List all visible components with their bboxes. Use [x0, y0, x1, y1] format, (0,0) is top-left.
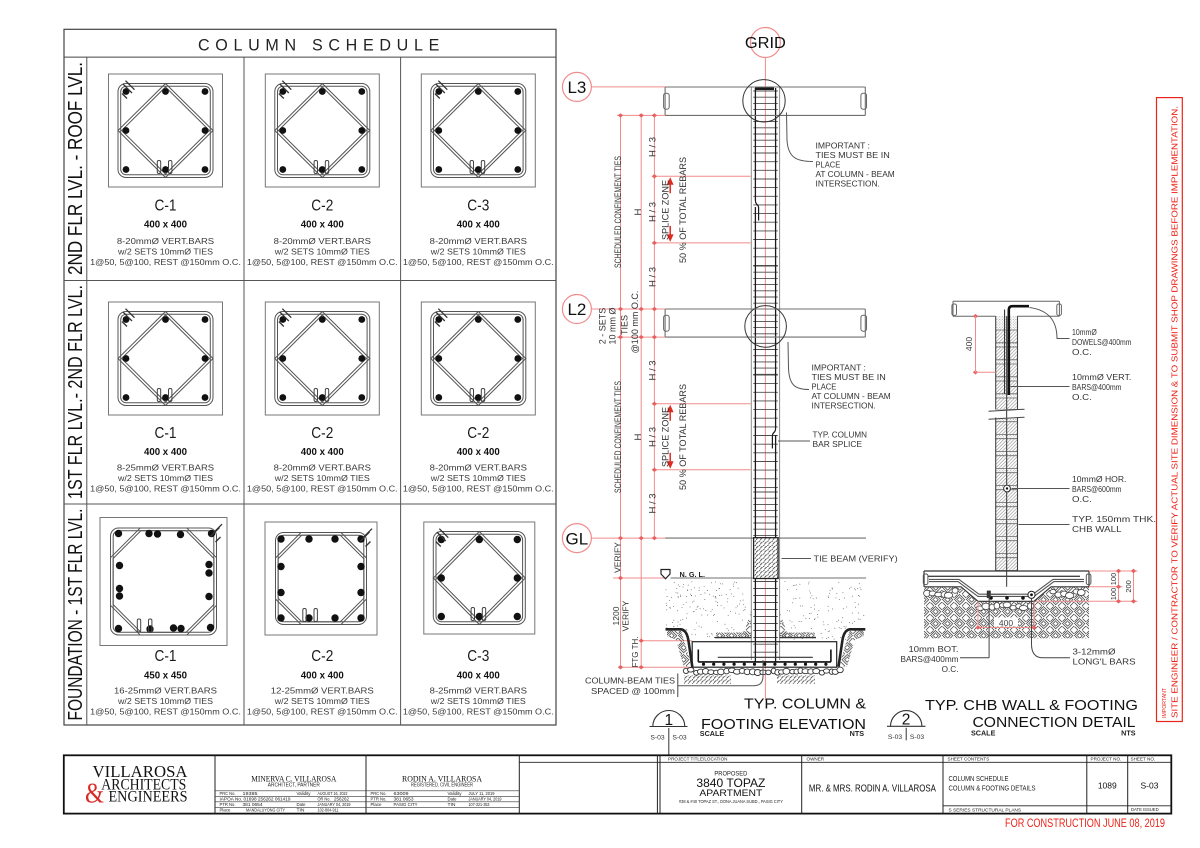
svg-text:400 x 400: 400 x 400 — [301, 671, 344, 682]
svg-text:S-03: S-03 — [888, 734, 903, 741]
svg-text:C-2: C-2 — [467, 425, 489, 442]
svg-text:Validity: Validity — [297, 791, 312, 797]
svg-text:8-20mmØ VERT.BARS: 8-20mmØ VERT.BARS — [430, 236, 527, 246]
svg-text:400 x 400: 400 x 400 — [144, 447, 187, 458]
svg-text:O.C.: O.C. — [942, 665, 959, 674]
svg-text:PTR No.: PTR No. — [220, 802, 236, 808]
svg-text:H / 3: H / 3 — [648, 427, 659, 447]
svg-text:400 x 400: 400 x 400 — [144, 220, 187, 231]
svg-text:AT COLUMN - BEAM: AT COLUMN - BEAM — [812, 392, 891, 401]
svg-text:PROJECT TITLE/LOCATION: PROJECT TITLE/LOCATION — [668, 756, 727, 761]
svg-text:10 mm Ø: 10 mm Ø — [608, 307, 618, 344]
svg-text:2 - SETS: 2 - SETS — [598, 308, 608, 345]
svg-text:H: H — [633, 208, 644, 215]
svg-text:S-03: S-03 — [672, 734, 687, 741]
svg-text:FTG TH.: FTG TH. — [631, 637, 640, 668]
svg-text:3-12mmØ: 3-12mmØ — [1073, 648, 1117, 657]
svg-text:N. G. L.: N. G. L. — [680, 570, 706, 579]
svg-text:C-3: C-3 — [467, 198, 489, 215]
svg-text:200: 200 — [1124, 580, 1133, 593]
svg-text:C-2: C-2 — [311, 648, 333, 665]
svg-text:w/2 SETS 10mmØ TIES: w/2 SETS 10mmØ TIES — [117, 247, 213, 257]
svg-text:100: 100 — [1109, 573, 1118, 586]
svg-text:H / 3: H / 3 — [648, 202, 659, 222]
svg-text:TYP. COLUMN: TYP. COLUMN — [813, 431, 868, 440]
svg-text:10mmØ HOR.: 10mmØ HOR. — [1072, 475, 1126, 484]
svg-text:PASIG CITY: PASIG CITY — [394, 802, 419, 808]
svg-text:S-03: S-03 — [910, 734, 925, 741]
svg-text:8-25mmØ VERT.BARS: 8-25mmØ VERT.BARS — [430, 686, 527, 696]
svg-text:MANDALUYONG CITY: MANDALUYONG CITY — [246, 808, 286, 814]
svg-text:10mmØ VERT.: 10mmØ VERT. — [1072, 373, 1131, 382]
svg-text:SCALE: SCALE — [971, 728, 996, 737]
svg-text:1200: 1200 — [611, 606, 621, 625]
svg-text:TIN: TIN — [448, 802, 457, 808]
svg-text:SPLICE ZONE: SPLICE ZONE — [661, 407, 672, 467]
svg-text:PLACE: PLACE — [812, 383, 837, 392]
svg-text:19385: 19385 — [243, 791, 258, 797]
svg-text:COLUMN SCHEDULE: COLUMN SCHEDULE — [949, 774, 1009, 783]
svg-text:C-1: C-1 — [155, 648, 177, 665]
svg-text:FOOTING ELEVATION: FOOTING ELEVATION — [701, 716, 866, 733]
svg-text:C-3: C-3 — [467, 648, 489, 665]
svg-text:CHB WALL: CHB WALL — [1072, 525, 1122, 534]
svg-text:SCALE: SCALE — [700, 729, 725, 738]
svg-text:SPLICE ZONE: SPLICE ZONE — [661, 180, 672, 240]
svg-text:JANUARY 04, 2019: JANUARY 04, 2019 — [318, 802, 351, 808]
svg-text:ENGINEERS: ENGINEERS — [109, 789, 188, 806]
svg-text:TIE BEAM (VERIFY): TIE BEAM (VERIFY) — [814, 555, 898, 564]
svg-text:TYP. CHB WALL & FOOTING: TYP. CHB WALL & FOOTING — [925, 697, 1138, 714]
svg-text:63009: 63009 — [394, 791, 409, 797]
svg-text:2: 2 — [902, 712, 911, 729]
svg-text:COLUMN & FOOTING DETAILS: COLUMN & FOOTING DETAILS — [949, 783, 1036, 792]
svg-text:1@50, 5@100, REST @150mm O.C.: 1@50, 5@100, REST @150mm O.C. — [90, 484, 241, 494]
svg-text:w/2 SETS 10mmØ TIES: w/2 SETS 10mmØ TIES — [430, 473, 526, 483]
svg-text:BARS@400mm: BARS@400mm — [901, 655, 959, 664]
svg-text:SHEET NO.: SHEET NO. — [1131, 756, 1156, 761]
svg-text:GL: GL — [566, 529, 589, 548]
svg-text:C-2: C-2 — [311, 198, 333, 215]
svg-text:8-20mmØ VERT.BARS: 8-20mmØ VERT.BARS — [274, 463, 371, 473]
svg-text:100: 100 — [1109, 588, 1118, 601]
svg-text:AT COLUMN - BEAM: AT COLUMN - BEAM — [816, 170, 895, 179]
svg-text:1@50, 5@100, REST @150mm O.C.: 1@50, 5@100, REST @150mm O.C. — [247, 707, 398, 717]
svg-text:IMPORTANT :: IMPORTANT : — [816, 142, 870, 151]
svg-text:1@50, 5@100, REST @150mm O.C.: 1@50, 5@100, REST @150mm O.C. — [403, 484, 554, 494]
svg-text:50 % OF TOTAL REBARS: 50 % OF TOTAL REBARS — [678, 157, 689, 263]
svg-text:w/2 SETS 10mmØ TIES: w/2 SETS 10mmØ TIES — [274, 473, 370, 483]
svg-text:@100 mm O.C.: @100 mm O.C. — [630, 291, 640, 354]
svg-text:400: 400 — [999, 618, 1013, 628]
svg-text:TYP. 150mm THK.: TYP. 150mm THK. — [1072, 515, 1156, 524]
svg-text:PLACE: PLACE — [816, 161, 841, 170]
svg-text:GRID: GRID — [745, 35, 786, 52]
svg-text:AUGUST 16, 2022: AUGUST 16, 2022 — [318, 791, 348, 797]
svg-text:1089: 1089 — [1098, 781, 1117, 791]
svg-text:1@50, 5@100, REST @150mm O.C.: 1@50, 5@100, REST @150mm O.C. — [90, 257, 241, 267]
svg-text:SITE ENGINEER / CONTRACTOR TO: SITE ENGINEER / CONTRACTOR TO VERIFY ACT… — [1170, 106, 1180, 718]
svg-text:O.C.: O.C. — [1072, 393, 1092, 402]
svg-text:8-20mmØ VERT.BARS: 8-20mmØ VERT.BARS — [117, 236, 214, 246]
svg-text:O.C.: O.C. — [1072, 348, 1092, 357]
svg-text:1@50, 5@100, REST @150mm O.C.: 1@50, 5@100, REST @150mm O.C. — [247, 484, 398, 494]
svg-text:INTERSECTION.: INTERSECTION. — [816, 180, 880, 189]
svg-text:COLUMN-BEAM TIES: COLUMN-BEAM TIES — [585, 676, 676, 685]
svg-text:w/2 SETS 10mmØ TIES: w/2 SETS 10mmØ TIES — [274, 696, 370, 706]
svg-text:BARS@400mm: BARS@400mm — [1072, 383, 1122, 392]
svg-text:8-20mmØ VERT.BARS: 8-20mmØ VERT.BARS — [274, 236, 371, 246]
svg-text:w/2 SETS 10mmØ TIES: w/2 SETS 10mmØ TIES — [430, 247, 526, 257]
svg-text:DATE ISSUED: DATE ISSUED — [1131, 807, 1159, 812]
svg-text:107-321-353: 107-321-353 — [469, 802, 490, 808]
svg-text:NTS: NTS — [850, 729, 865, 738]
svg-text:OR No.: OR No. — [318, 797, 331, 803]
svg-text:450 x 450: 450 x 450 — [144, 671, 187, 682]
svg-text:8-20mmØ VERT.BARS: 8-20mmØ VERT.BARS — [430, 463, 527, 473]
svg-text:CONNECTION DETAIL: CONNECTION DETAIL — [973, 714, 1136, 731]
svg-text:Date: Date — [297, 802, 306, 808]
svg-text:16-25mmØ VERT.BARS: 16-25mmØ VERT.BARS — [114, 686, 217, 696]
svg-text:VERIFY: VERIFY — [621, 600, 631, 631]
svg-text:PROJECT NO.: PROJECT NO. — [1091, 756, 1122, 761]
svg-text:50 % OF TOTAL REBARS: 50 % OF TOTAL REBARS — [678, 384, 689, 490]
svg-text:Date: Date — [448, 797, 457, 803]
svg-text:IMPORTANT :: IMPORTANT : — [812, 364, 866, 373]
svg-text:w/2 SETS 10mmØ TIES: w/2 SETS 10mmØ TIES — [117, 696, 213, 706]
svg-text:DOWELS@400mm: DOWELS@400mm — [1072, 338, 1132, 347]
svg-text:COLUMN SCHEDULE: COLUMN SCHEDULE — [198, 36, 445, 55]
svg-text:w/2 SETS 10mmØ TIES: w/2 SETS 10mmØ TIES — [274, 247, 370, 257]
svg-text:S-03: S-03 — [1141, 781, 1159, 791]
svg-text:IAPOA No. 01698 256262 0614: IAPOA No. 01698 256262 061419 — [220, 797, 291, 803]
svg-text:JANUARY 04, 2019: JANUARY 04, 2019 — [469, 797, 502, 803]
svg-text:H / 3: H / 3 — [648, 493, 659, 513]
svg-text:102-804-911: 102-804-911 — [318, 808, 339, 814]
svg-text:TIES MUST BE IN: TIES MUST BE IN — [816, 151, 890, 160]
svg-text:381 0653: 381 0653 — [394, 797, 414, 803]
svg-text:REGISTERED, CIVIL ENGINEER: REGISTERED, CIVIL ENGINEER — [411, 783, 473, 789]
svg-text:Place: Place — [220, 808, 231, 814]
svg-text:400 x 400: 400 x 400 — [457, 447, 500, 458]
svg-text:INTERSECTION.: INTERSECTION. — [812, 402, 876, 411]
svg-text:TYP. COLUMN &: TYP. COLUMN & — [744, 695, 866, 712]
svg-text:1@50, 5@100, REST @150mm O.C.: 1@50, 5@100, REST @150mm O.C. — [247, 257, 398, 267]
svg-text:8-25mmØ VERT.BARS: 8-25mmØ VERT.BARS — [117, 463, 214, 473]
svg-text:BAR SPLICE: BAR SPLICE — [813, 440, 863, 449]
svg-text:1@50, 5@100, REST @150mm O.C.: 1@50, 5@100, REST @150mm O.C. — [403, 257, 554, 267]
svg-text:C-1: C-1 — [155, 425, 177, 442]
svg-text:400 x 400: 400 x 400 — [301, 220, 344, 231]
svg-text:C-2: C-2 — [311, 425, 333, 442]
svg-text:SPACED @ 100mm: SPACED @ 100mm — [591, 687, 675, 696]
svg-text:FOUNDATION - 1ST FLR LVL.: FOUNDATION - 1ST FLR LVL. — [65, 509, 87, 721]
svg-text:LONG'L BARS: LONG'L BARS — [1073, 658, 1137, 667]
svg-text:H / 3: H / 3 — [648, 267, 659, 287]
svg-text:400 x 400: 400 x 400 — [457, 220, 500, 231]
svg-text:OWNER: OWNER — [807, 756, 825, 761]
svg-text:L2: L2 — [567, 300, 586, 319]
svg-text:10mmØ: 10mmØ — [1072, 328, 1097, 337]
svg-text:400 x 400: 400 x 400 — [457, 671, 500, 682]
svg-text:H / 3: H / 3 — [648, 137, 659, 157]
svg-text:1: 1 — [664, 712, 673, 729]
svg-text:12-25mmØ VERT.BARS: 12-25mmØ VERT.BARS — [271, 686, 374, 696]
svg-text:IMPORTANT: IMPORTANT — [1162, 687, 1168, 718]
svg-text:PRC No.: PRC No. — [220, 791, 236, 797]
svg-text:400: 400 — [964, 337, 974, 351]
svg-text:TIN: TIN — [297, 808, 306, 814]
svg-text:SCHEDULED CONFINEMENT TIES: SCHEDULED CONFINEMENT TIES — [613, 156, 624, 268]
svg-text:O.C.: O.C. — [1072, 495, 1092, 504]
svg-text:SHEET CONTENTS: SHEET CONTENTS — [948, 756, 990, 761]
svg-text:2ND FLR LVL. - ROOF LVL.: 2ND FLR LVL. - ROOF LVL. — [65, 62, 87, 275]
svg-text:TIES: TIES — [620, 315, 630, 335]
svg-text:S-03: S-03 — [650, 734, 665, 741]
svg-text:381 0654: 381 0654 — [243, 802, 263, 808]
svg-text:VERIFY: VERIFY — [612, 542, 622, 573]
svg-text:JULY 11, 2019: JULY 11, 2019 — [469, 791, 495, 797]
svg-text:L3: L3 — [567, 78, 586, 97]
svg-text:ARCHITECT, PARTNER: ARCHITECT, PARTNER — [268, 783, 320, 789]
svg-text:&: & — [85, 778, 104, 810]
svg-text:C-1: C-1 — [155, 198, 177, 215]
svg-text:256262: 256262 — [334, 797, 349, 803]
svg-text:PTR No.: PTR No. — [371, 797, 387, 803]
svg-text:BARS@600mm: BARS@600mm — [1072, 485, 1122, 494]
svg-text:Place: Place — [371, 802, 382, 808]
svg-text:APARTMENT: APARTMENT — [699, 788, 763, 798]
svg-text:S SERIES STRUCTURAL PLANS: S SERIES STRUCTURAL PLANS — [949, 807, 1022, 813]
svg-text:SCHEDULED CONFINEMENT TIES: SCHEDULED CONFINEMENT TIES — [613, 381, 624, 493]
svg-text:PRC No.: PRC No. — [371, 791, 387, 797]
svg-text:Validity: Validity — [448, 791, 463, 797]
svg-text:1@50, 5@100, REST @150mm O.C.: 1@50, 5@100, REST @150mm O.C. — [90, 707, 241, 717]
svg-text:400 x 400: 400 x 400 — [301, 447, 344, 458]
svg-text:w/2 SETS 10mmØ TIES: w/2 SETS 10mmØ TIES — [430, 696, 526, 706]
svg-text:TIES MUST BE IN: TIES MUST BE IN — [812, 373, 886, 382]
svg-text:NTS: NTS — [1121, 728, 1136, 737]
svg-text:H / 3: H / 3 — [648, 360, 659, 380]
svg-text:1@50, 5@100, REST @150mm O.C.: 1@50, 5@100, REST @150mm O.C. — [403, 707, 554, 717]
svg-text:10mm BOT.: 10mm BOT. — [909, 645, 959, 654]
svg-text:1ST FLR LVL.- 2ND FLR LVL.: 1ST FLR LVL.- 2ND FLR LVL. — [65, 285, 87, 499]
svg-text:MR. & MRS. RODIN A. VILLAROSA: MR. & MRS. RODIN A. VILLAROSA — [809, 783, 936, 795]
svg-text:#38 & #40 TOPAZ ST., DONA JUAN: #38 & #40 TOPAZ ST., DONA JUANA SUBD., P… — [679, 799, 783, 804]
svg-text:H: H — [633, 433, 644, 440]
svg-text:w/2 SETS 10mmØ TIES: w/2 SETS 10mmØ TIES — [117, 473, 213, 483]
svg-text:FOR CONSTRUCTION JUNE 08, 201: FOR CONSTRUCTION JUNE 08, 2019 — [1005, 818, 1165, 830]
